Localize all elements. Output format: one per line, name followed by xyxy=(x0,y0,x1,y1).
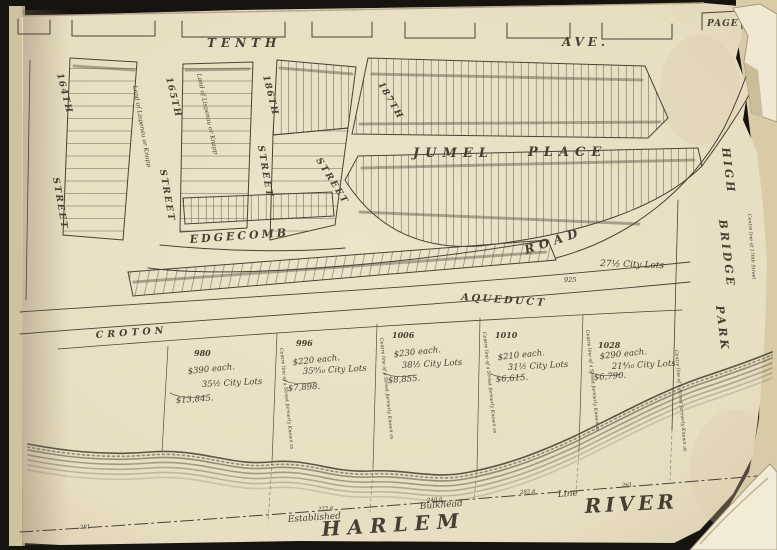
city-lots-27-note: 27½ City Lots xyxy=(599,258,665,271)
parcel-id-1010: 1010 xyxy=(495,330,518,340)
parcel-id-1006: 1006 xyxy=(392,330,415,340)
page-corner-label: PAGE xyxy=(706,19,739,29)
aqueduct-lot-number: 925 xyxy=(564,276,576,284)
river-label: RIVER xyxy=(583,489,678,518)
bulkhead-measure: 240.6 xyxy=(426,497,444,504)
bulkhead-measure: 272.6 xyxy=(317,506,335,513)
parcel-id-1028: 1028 xyxy=(598,340,621,350)
jumel-label: JUMEL xyxy=(410,146,494,161)
line-label: Line xyxy=(557,489,579,500)
parcel-id-996: 996 xyxy=(296,338,313,348)
block-tenth-jumel xyxy=(352,58,668,138)
parcel-id-980: 980 xyxy=(194,348,211,358)
atlas-photo: PAGE TENTH AVE. 164TH xyxy=(0,0,777,550)
bulkhead-measure: 281 xyxy=(79,524,91,531)
bulkhead-measure: 282.6 xyxy=(519,489,537,496)
bulkhead-measure: 261 xyxy=(621,482,633,489)
tenth-ave-label-left: TENTH xyxy=(207,36,281,50)
tenth-ave-label-right: AVE. xyxy=(561,35,609,49)
map-canvas: PAGE TENTH AVE. 164TH xyxy=(0,0,777,550)
place-label: PLACE xyxy=(527,145,607,160)
